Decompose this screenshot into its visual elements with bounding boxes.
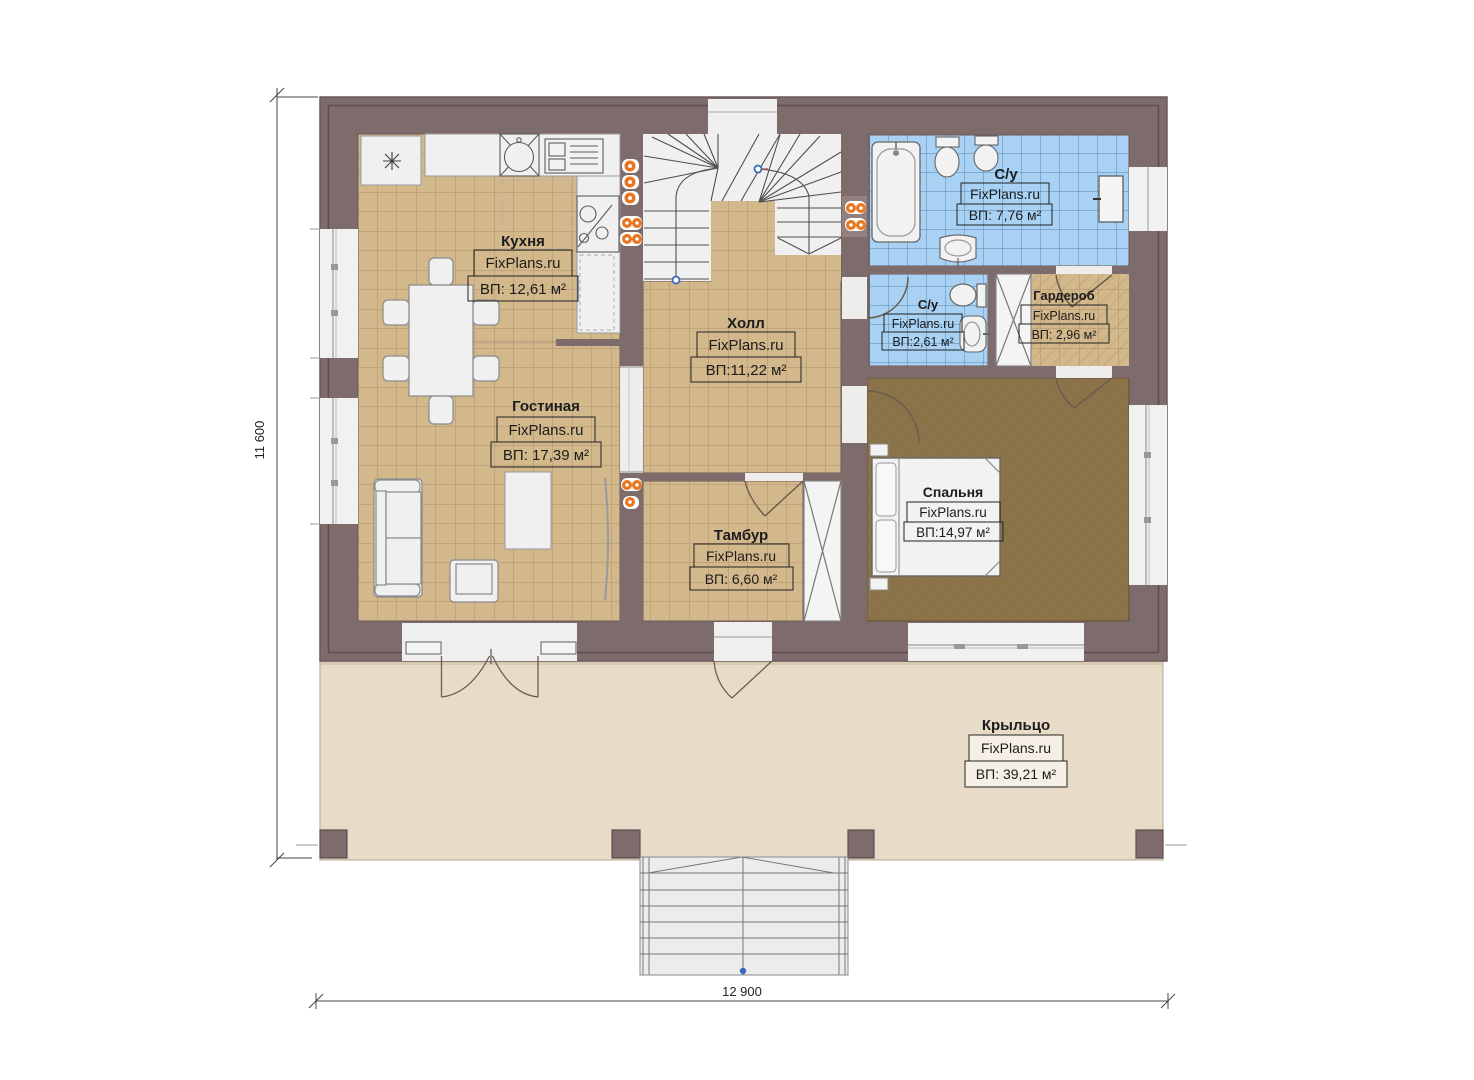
- svg-text:FixPlans.ru: FixPlans.ru: [706, 548, 776, 564]
- svg-text:ВП:11,22 м²: ВП:11,22 м²: [706, 362, 787, 379]
- svg-text:FixPlans.ru: FixPlans.ru: [919, 505, 987, 520]
- svg-text:С/у: С/у: [994, 166, 1018, 183]
- svg-text:ВП: 12,61 м²: ВП: 12,61 м²: [480, 281, 566, 298]
- svg-text:FixPlans.ru: FixPlans.ru: [970, 186, 1040, 202]
- svg-text:Кухня: Кухня: [501, 233, 545, 250]
- svg-text:С/у: С/у: [918, 297, 939, 312]
- svg-text:FixPlans.ru: FixPlans.ru: [981, 740, 1051, 756]
- svg-text:Тамбур: Тамбур: [714, 527, 768, 544]
- svg-text:ВП:14,97 м²: ВП:14,97 м²: [916, 525, 990, 540]
- svg-text:Гостиная: Гостиная: [512, 398, 580, 415]
- svg-text:ВП: 7,76 м²: ВП: 7,76 м²: [969, 207, 1042, 223]
- svg-text:ВП: 17,39 м²: ВП: 17,39 м²: [503, 447, 589, 464]
- svg-text:FixPlans.ru: FixPlans.ru: [485, 255, 560, 272]
- svg-text:ВП: 39,21 м²: ВП: 39,21 м²: [976, 766, 1057, 782]
- svg-text:11 600: 11 600: [252, 421, 267, 460]
- svg-text:FixPlans.ru: FixPlans.ru: [1033, 309, 1096, 323]
- svg-text:ВП:2,61 м²: ВП:2,61 м²: [892, 335, 953, 349]
- svg-text:Гардероб: Гардероб: [1033, 288, 1094, 303]
- svg-text:Крыльцо: Крыльцо: [982, 717, 1050, 734]
- svg-text:ВП: 2,96 м²: ВП: 2,96 м²: [1032, 328, 1097, 342]
- svg-text:FixPlans.ru: FixPlans.ru: [892, 317, 955, 331]
- svg-text:FixPlans.ru: FixPlans.ru: [708, 337, 783, 354]
- svg-text:Холл: Холл: [727, 315, 765, 332]
- svg-text:12 900: 12 900: [722, 984, 762, 999]
- svg-text:Спальня: Спальня: [923, 484, 983, 500]
- svg-text:ВП: 6,60 м²: ВП: 6,60 м²: [705, 571, 778, 587]
- svg-text:FixPlans.ru: FixPlans.ru: [508, 422, 583, 439]
